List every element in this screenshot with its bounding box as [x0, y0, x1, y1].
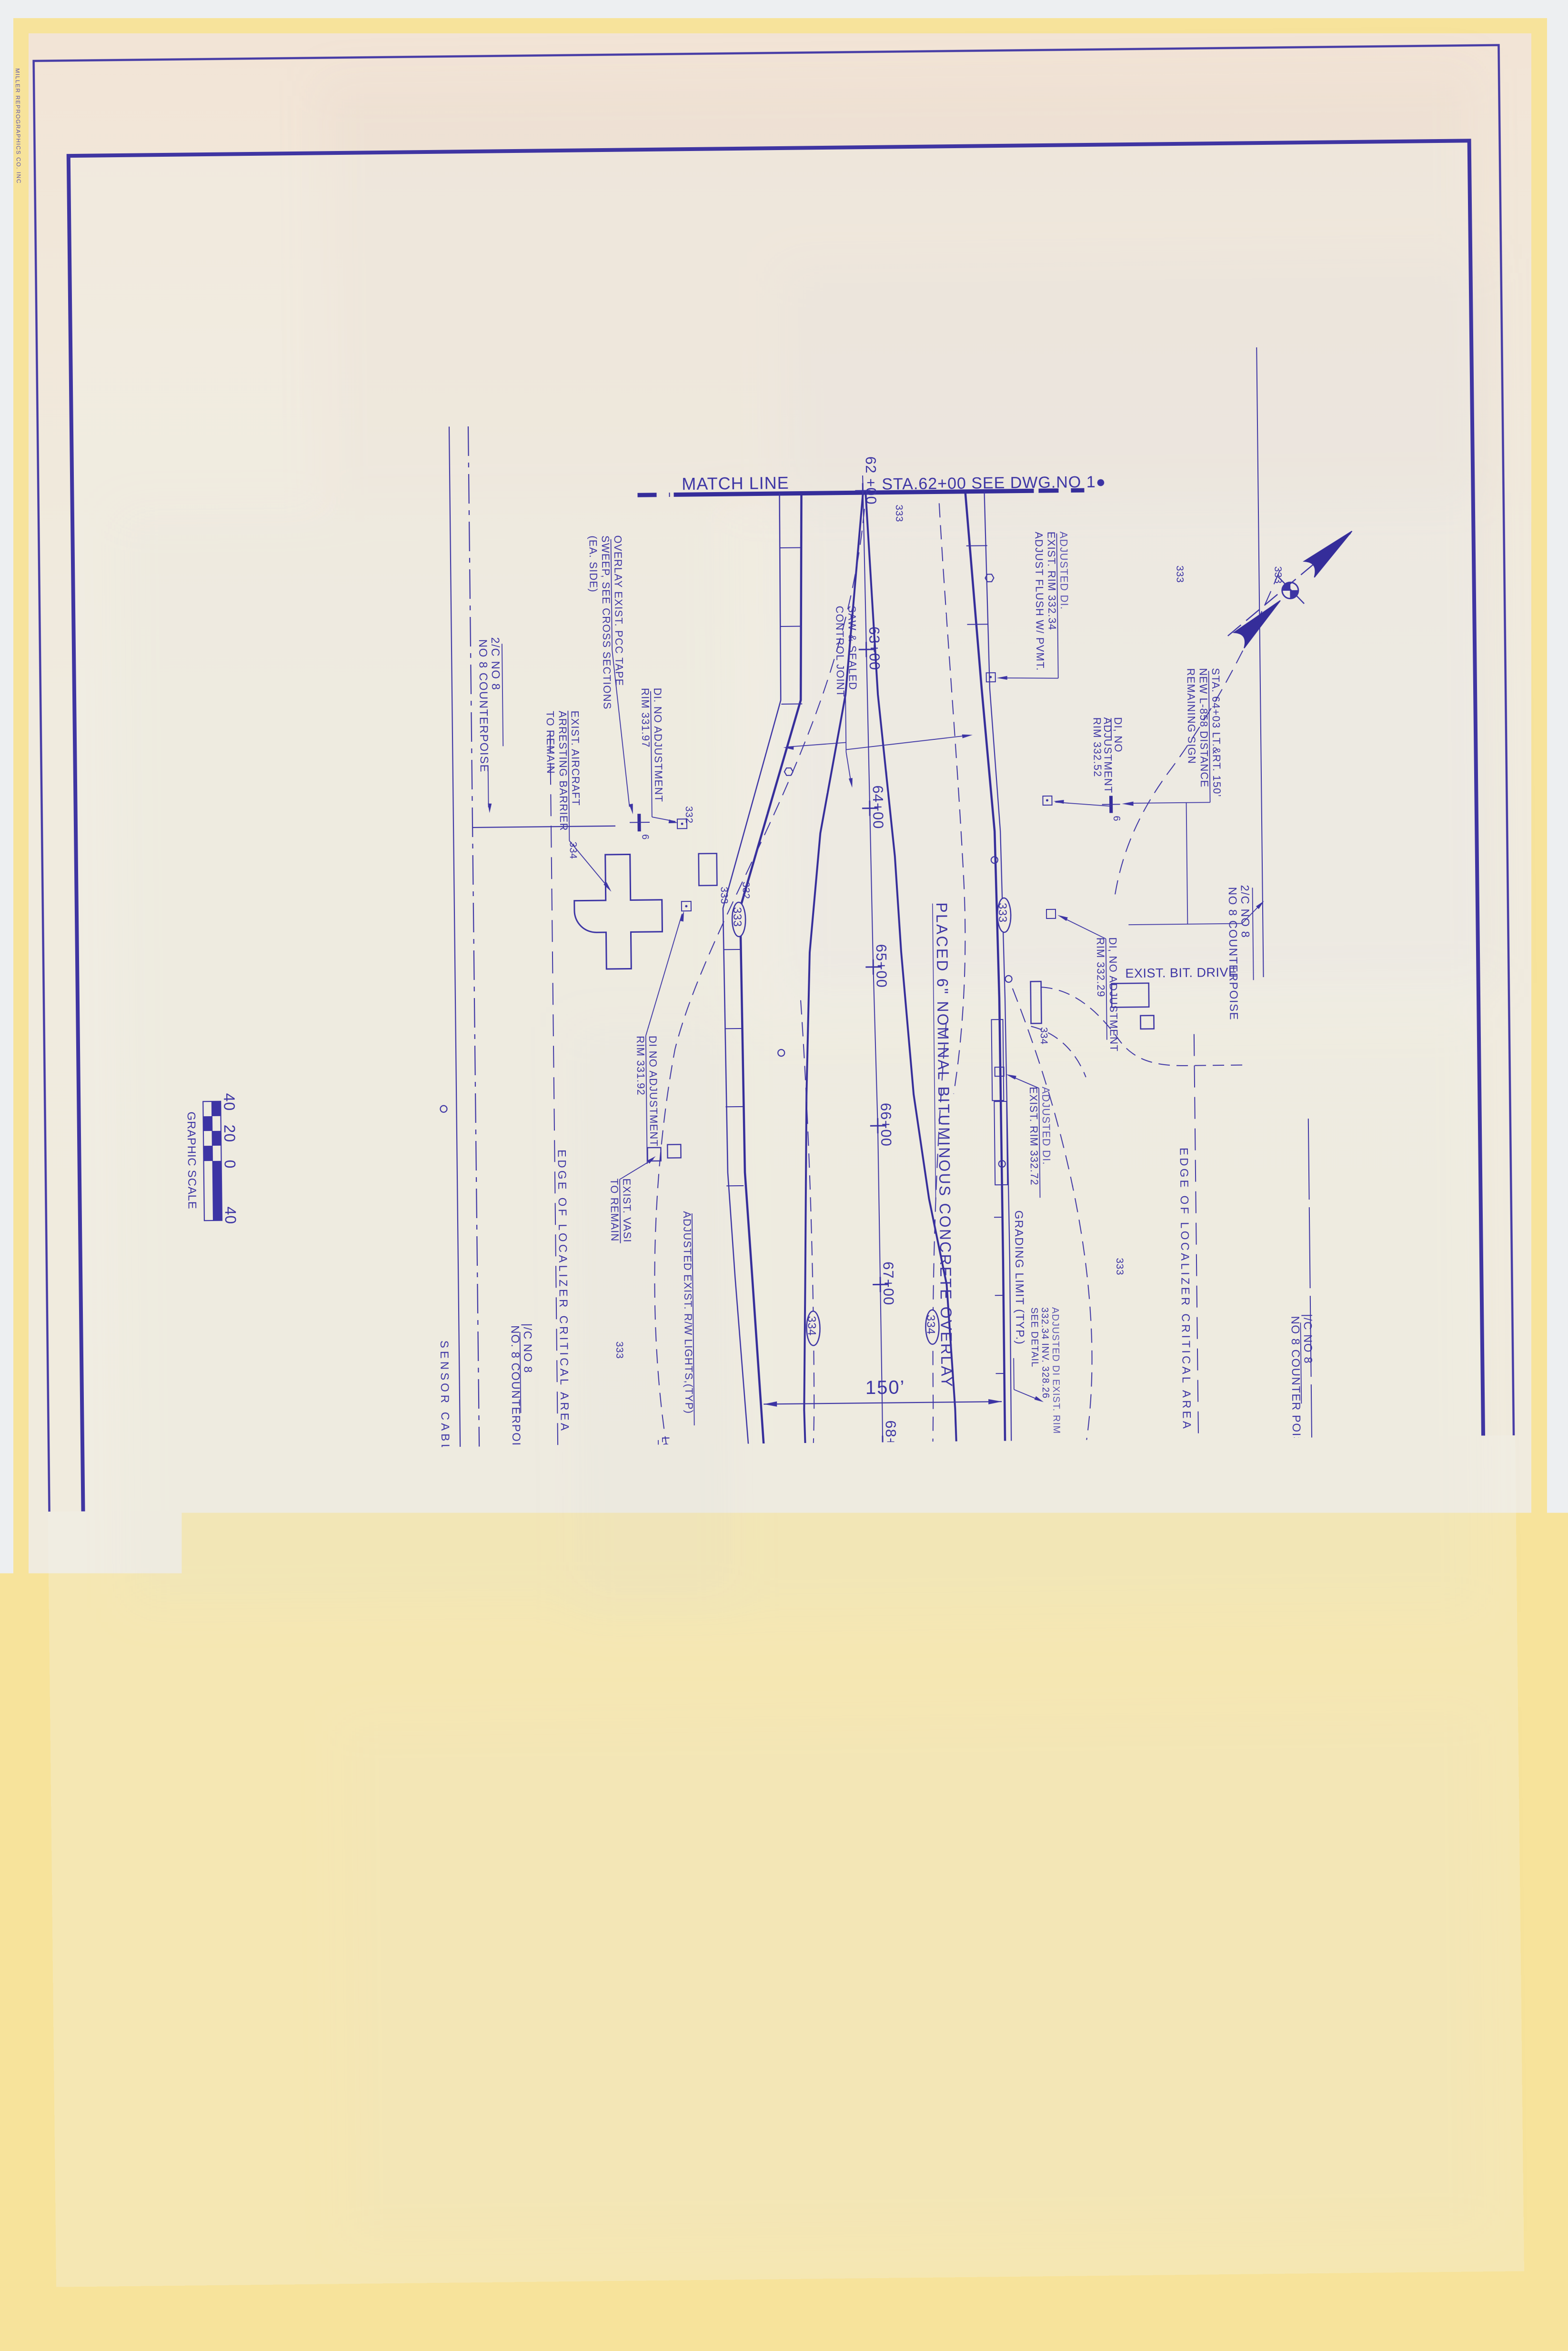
svg-text:EXIST. AIRCRAFT: EXIST. AIRCRAFT	[569, 711, 582, 806]
svg-text:ADJUSTED D.I.: ADJUSTED D.I.	[1132, 1793, 1144, 1872]
svg-text:333: 333	[996, 903, 1009, 923]
svg-text:STA 69+75 - 90’RT.: STA 69+75 - 90’RT.	[745, 1769, 757, 1866]
svg-text:REMOVED EXIST. BIT. CONC. PVMT: REMOVED EXIST. BIT. CONC. PVMT. &	[685, 1703, 699, 1902]
svg-text:B.L.: B.L.	[188, 1866, 199, 1885]
svg-text:DATE: DATE	[311, 2029, 320, 2051]
svg-text:334: 334	[918, 1891, 929, 1908]
svg-text:332: 332	[740, 882, 751, 899]
svg-text:REVISED "AS BUILT": REVISED "AS BUILT"	[185, 1653, 200, 1790]
svg-text:40: 40	[222, 1206, 239, 1224]
svg-text:6: 6	[640, 834, 650, 840]
svg-text:37702: 37702	[144, 2100, 160, 2145]
svg-text:GRAPHIC SCALE: GRAPHIC SCALE	[184, 1111, 198, 1209]
svg-text:INSTALLED ELEC M.H.: INSTALLED ELEC M.H.	[734, 1769, 746, 1887]
svg-text:engineers/architects/planners: engineers/architects/planners	[122, 1725, 139, 1904]
svg-text:STA 69+75 - 90’LT: STA 69+75 - 90’LT	[1035, 1757, 1048, 1853]
svg-text:LOAMED & SEEDED (TYP.): LOAMED & SEEDED (TYP.)	[660, 1437, 673, 1582]
svg-text:SEE TYP. SECTION.: SEE TYP. SECTION.	[663, 1703, 674, 1806]
svg-text:APPD.: APPD.	[171, 1888, 178, 1909]
svg-text:67+00: 67+00	[880, 1261, 897, 1305]
svg-text:0: 0	[221, 1160, 239, 1169]
svg-text:ADJUST FLUSH W/ PVMT.: ADJUST FLUSH W/ PVMT.	[1033, 532, 1046, 671]
svg-text:MATCH LINE: MATCH LINE	[682, 473, 789, 494]
svg-text:PLAN: PLAN	[204, 2046, 232, 2123]
svg-text:I HEREBY CERTIFY THAT ALL: I HEREBY CERTIFY THAT ALL WORK	[369, 2026, 381, 2198]
svg-text:71 +00: 71 +00	[888, 1926, 905, 1975]
svg-text:STA 68+50 10’LT.: STA 68+50 10’LT.	[925, 1555, 938, 1646]
svg-text:TO REMAIN: TO REMAIN	[544, 711, 556, 774]
svg-text:EXIST. RIM 332.72: EXIST. RIM 332.72	[1027, 1087, 1040, 1186]
svg-text:RIM 331.92: RIM 331.92	[634, 1036, 647, 1096]
svg-text:334: 334	[924, 1315, 937, 1335]
svg-text:RIM 332.52: RIM 332.52	[1091, 717, 1104, 777]
svg-text:INSTALLED ELEC M.H.: INSTALLED ELEC M.H.	[1024, 1757, 1037, 1880]
svg-text:333: 333	[894, 505, 905, 522]
svg-text:TO REMAIN: TO REMAIN	[608, 1179, 621, 1242]
svg-text:333: 333	[1114, 1258, 1125, 1275]
svg-text:DATE: DATE	[174, 1914, 182, 1935]
svg-text:SENSOR CABLE: SENSOR CABLE	[438, 1341, 452, 1464]
svg-text:EXIST. RIM 332.34: EXIST. RIM 332.34	[1045, 532, 1058, 631]
svg-text:NO 8 COUNTERPOISE: NO 8 COUNTERPOISE	[476, 639, 491, 773]
svg-text:| " = 40 ’: | " = 40 ’	[158, 2004, 172, 2058]
svg-text:SIGNED: SIGNED	[331, 2028, 340, 2061]
svg-text:SJR: SJR	[93, 1965, 108, 1990]
svg-text:70 +00: 70 +00	[886, 1738, 903, 1786]
svg-text:|/C NO 8: |/C NO 8	[1301, 1314, 1314, 1364]
svg-text:BEGIN R/W RECONSTRUCTION: BEGIN R/W RECONSTRUCTION	[1096, 1689, 1301, 1706]
svg-text:5-7-85: 5-7-85	[347, 2100, 357, 2126]
svg-text:334: 334	[1038, 1027, 1049, 1045]
svg-text:BURLINGTON INTERNATIONAL AIR: BURLINGTON INTERNATIONAL AIRPORT	[275, 1953, 294, 2248]
svg-text:SEE DETAIL: SEE DETAIL	[1029, 1307, 1040, 1367]
svg-text:333: 333	[1118, 1759, 1129, 1776]
svg-text:DATE:: DATE:	[135, 1959, 145, 1987]
svg-text:2/C NO 8: 2/C NO 8	[1238, 885, 1251, 938]
svg-text:EXIST. VASI: EXIST. VASI	[621, 1178, 633, 1242]
svg-text:64+00: 64+00	[869, 785, 886, 829]
svg-text:68+00: 68+00	[883, 1420, 900, 1464]
svg-text:SCALE:: SCALE:	[159, 1956, 169, 1990]
svg-text:DR.: DR.	[171, 1842, 178, 1854]
svg-text:EXIST. BIT. DRIVE: EXIST. BIT. DRIVE	[1125, 965, 1237, 981]
svg-text:GRADING LIMIT (TYP.): GRADING LIMIT (TYP.)	[1012, 1211, 1026, 1345]
svg-text:STA. 62+00 TO STA.71+00: STA. 62+00 TO STA.71+00	[189, 1975, 207, 2174]
svg-text:333: 333	[718, 887, 729, 904]
svg-text:HTA: HTA	[117, 1630, 158, 1714]
svg-text:SHEET: SHEET	[121, 2086, 130, 2112]
svg-text:SEE DWG. NO. 12: SEE DWG. NO. 12	[924, 1934, 1083, 1956]
svg-text:BY: BY	[177, 1843, 184, 1853]
svg-text:SAW & SEALED: SAW & SEALED	[846, 605, 859, 690]
svg-text:REV.: REV.	[168, 1629, 176, 1647]
svg-text:JBD: JBD	[93, 2052, 108, 2077]
svg-text:333: 333	[1174, 565, 1185, 583]
svg-text:B.L.: B.L.	[188, 1888, 199, 1907]
svg-text:40: 40	[221, 1093, 238, 1111]
svg-text:ADJUSTED DI EXIST. RIM: ADJUSTED DI EXIST. RIM	[1050, 1307, 1062, 1434]
svg-text:CONSTRUCTED NEW R/W PVMT.: CONSTRUCTED NEW R/W PVMT.	[674, 1703, 687, 1874]
svg-text:DI. NO ADJUSTMENT: DI. NO ADJUSTMENT	[652, 688, 665, 803]
svg-text:|/C NO 8: |/C NO 8	[521, 1323, 534, 1373]
svg-text:4/85: 4/85	[189, 1913, 199, 1934]
svg-text:NO 8 COUNTERPOISE: NO 8 COUNTERPOISE	[1226, 887, 1240, 1020]
svg-text:DO NOT SCALE DRAWING: DO NOT SCALE DRAWING	[73, 2085, 83, 2212]
svg-text:20: 20	[221, 1124, 238, 1142]
svg-text:DESCRIPTION: DESCRIPTION	[171, 1715, 180, 1772]
svg-text:INSTALLED SENSOR: INSTALLED SENSOR	[913, 1555, 926, 1668]
svg-text:SOUTH BURLINGTON, VERMONT: SOUTH BURLINGTON, VERMONT	[259, 1961, 277, 2243]
svg-text:334: 334	[854, 1886, 865, 1903]
svg-text:150’: 150’	[865, 1377, 905, 1398]
svg-text:ADJUSTED DI.: ADJUSTED DI.	[1057, 531, 1070, 610]
svg-text:ADJUSTED DI.: ADJUSTED DI.	[1040, 1087, 1053, 1165]
svg-text:MATCH LINE STA.71+00: MATCH LINE STA.71+00	[698, 1938, 885, 1958]
svg-text:DRAWING NO.: DRAWING NO.	[168, 2182, 176, 2242]
svg-text:R.B.: R.B.	[188, 1840, 198, 1861]
svg-text:66+00: 66+00	[877, 1103, 895, 1147]
svg-text:STA.69+50 END OVERLAY: STA.69+50 END OVERLAY	[1106, 1672, 1274, 1688]
svg-text:CKD.: CKD.	[171, 1865, 178, 1882]
svg-text:(EA. SIDE): (EA. SIDE)	[587, 535, 599, 593]
svg-text:6: 6	[1111, 816, 1122, 821]
svg-text:MAY, 1984: MAY, 1984	[135, 2006, 148, 2069]
svg-text:RIM 332.29: RIM 332.29	[1095, 938, 1107, 998]
svg-text:STA. 68+19 CONST. LEACHING: STA. 68+19 CONST. LEACHING	[1123, 1505, 1136, 1673]
svg-text:RIM 331.97: RIM 331.97	[639, 688, 652, 748]
svg-text:332: 332	[683, 806, 694, 824]
svg-text:45: 45	[100, 2132, 120, 2155]
svg-text:INDICATED ON THIS DRAWING: INDICATED ON THIS DRAWING HAS	[358, 2026, 369, 2193]
svg-text:REMAINING SIGN: REMAINING SIGN	[1185, 668, 1198, 765]
svg-text:333: 333	[614, 1342, 625, 1359]
svg-text:334: 334	[805, 1316, 818, 1336]
svg-text:STA.62+00 SEE DWG.NO 1●: STA.62+00 SEE DWG.NO 1●	[882, 473, 1106, 494]
svg-text:69+00: 69+00	[884, 1579, 901, 1623]
svg-text:OVERLAY RUNWAY 15-33: OVERLAY RUNWAY 15-33	[238, 2020, 251, 2173]
svg-text:332.34 INV. 328.26: 332.34 INV. 328.26	[1039, 1307, 1051, 1399]
svg-text:SAWCUT CONTROL JOINT: SAWCUT CONTROL JOINT	[842, 1678, 1011, 1695]
svg-text:MILLER REPROGRAPHICS CO. INC: MILLER REPROGRAPHICS CO. INC	[14, 68, 22, 184]
svg-text:OF: OF	[122, 2139, 130, 2150]
svg-text:STA. 64+03 LT.&RT. 150’: STA. 64+03 LT.&RT. 150’	[1210, 668, 1223, 797]
svg-text:PROJECT NO.: PROJECT NO.	[165, 2087, 174, 2146]
svg-text:INSTALLED 4" 12 WAY: INSTALLED 4" 12 WAY	[838, 1757, 852, 1877]
svg-text:DI NO ADJUSTMENT: DI NO ADJUSTMENT	[647, 1036, 660, 1147]
svg-text:BY: BY	[178, 1889, 185, 1899]
svg-text:CONTROL JOINT: CONTROL JOINT	[834, 606, 846, 697]
svg-text:BY: BY	[178, 1866, 185, 1876]
svg-text:2/C NO 8: 2/C NO 8	[489, 637, 502, 690]
svg-text:333: 333	[731, 907, 744, 927]
svg-text:DI, NO ADJUSTMENT: DI, NO ADJUSTMENT	[1107, 937, 1120, 1052]
svg-text:CONC. ENCASED DUCT: CONC. ENCASED DUCT	[826, 1757, 839, 1887]
svg-text:"AS BUILT": "AS BUILT"	[385, 2044, 431, 2218]
svg-text:65+00: 65+00	[873, 944, 890, 988]
svg-text:TW.S: TW.S	[93, 2004, 108, 2037]
